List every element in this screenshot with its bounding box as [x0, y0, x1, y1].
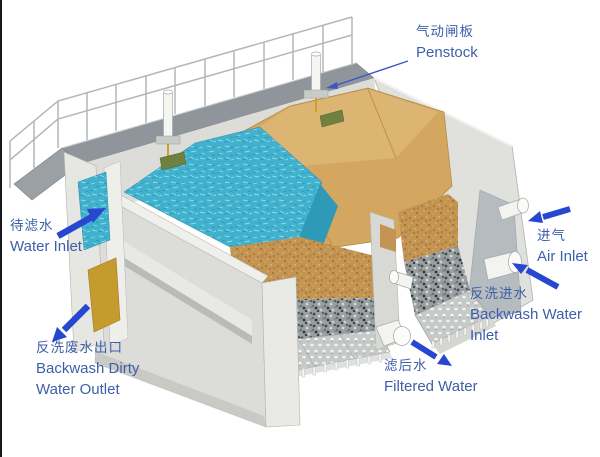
label-backwash-outlet-en1: Backwash Dirty [36, 358, 139, 379]
label-backwash-inlet-en: Backwash Water Inlet [470, 304, 600, 346]
label-air-inlet-zh: 进气 [537, 226, 588, 246]
label-backwash-inlet-zh: 反洗进水 [470, 284, 600, 304]
label-air-inlet: 进气 Air Inlet [537, 226, 588, 267]
label-penstock-en: Penstock [416, 42, 478, 63]
backwash-outlet-channel [88, 258, 120, 332]
label-filtered-water-zh: 滤后水 [384, 356, 478, 376]
left-frame-edge [0, 0, 2, 457]
label-water-inlet: 待滤水 Water Inlet [10, 216, 82, 257]
label-air-inlet-en: Air Inlet [537, 246, 588, 267]
label-filtered-water-en: Filtered Water [384, 376, 478, 397]
label-backwash-outlet-en2: Water Outlet [36, 379, 139, 400]
label-penstock-zh: 气动闸板 [416, 22, 478, 42]
wall-end-cap [262, 277, 300, 427]
label-penstock: 气动闸板 Penstock [416, 22, 478, 63]
label-filtered-water: 滤后水 Filtered Water [384, 356, 478, 397]
label-backwash-dirty-water-outlet: 反洗废水出口 Backwash Dirty Water Outlet [36, 338, 139, 400]
label-water-inlet-en: Water Inlet [10, 236, 82, 257]
label-backwash-outlet-zh: 反洗废水出口 [36, 338, 139, 358]
filter-tank-diagram: 气动闸板 Penstock 待滤水 Water Inlet 反洗废水出口 Bac… [0, 0, 600, 457]
label-backwash-water-inlet: 反洗进水 Backwash Water Inlet [470, 284, 600, 346]
air-inlet-arrow [543, 209, 570, 217]
label-water-inlet-zh: 待滤水 [10, 216, 82, 236]
